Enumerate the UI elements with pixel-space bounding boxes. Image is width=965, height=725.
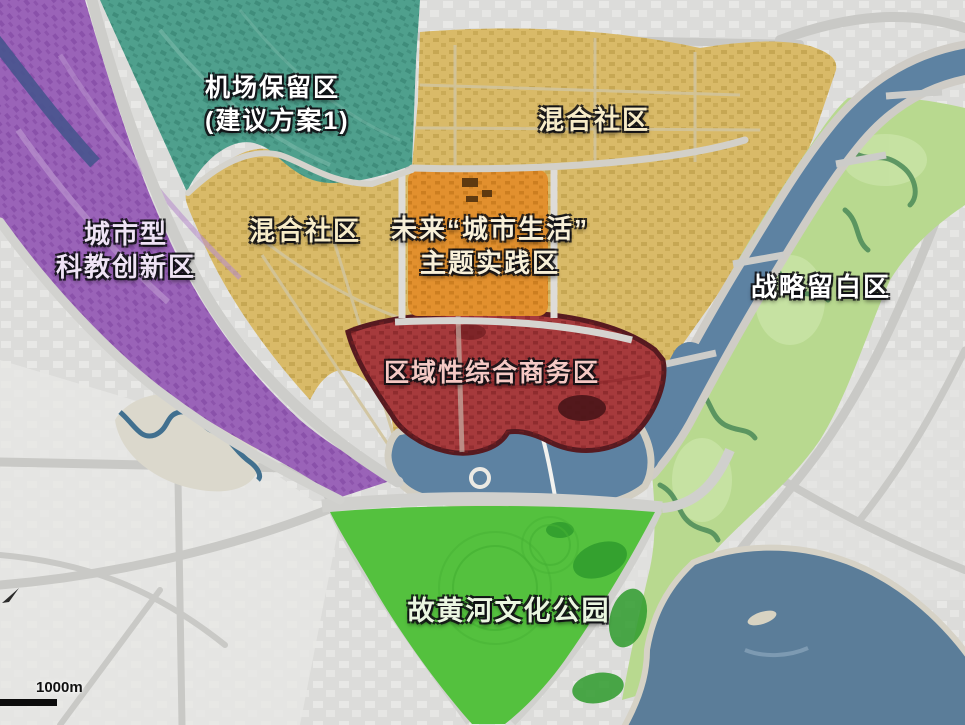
label-sci-line2: 科教创新区 — [56, 251, 196, 284]
scale-bar — [0, 699, 57, 706]
label-sci-edu: 城市型 科教创新区 — [56, 218, 196, 284]
label-future-line2: 主题实践区 — [391, 246, 589, 280]
label-future-line1: 未来“城市生活” — [391, 212, 589, 246]
label-mixed-community-top: 混合社区 — [538, 104, 650, 137]
scale-bar-label: 1000m — [36, 679, 83, 696]
label-yellow-river-park: 故黄河文化公园 — [408, 595, 611, 628]
label-airport-line2: (建议方案1) — [205, 105, 350, 138]
planning-map: 机场保留区 (建议方案1) 混合社区 城市型 科教创新区 混合社区 未来“城市生… — [0, 0, 965, 725]
label-airport-reserve: 机场保留区 (建议方案1) — [205, 72, 350, 138]
label-future-city-life: 未来“城市生活” 主题实践区 — [391, 212, 589, 280]
label-mixed-community-left: 混合社区 — [249, 215, 361, 248]
label-airport-line1: 机场保留区 — [205, 72, 350, 105]
label-sci-line1: 城市型 — [56, 218, 196, 251]
label-regional-business: 区域性综合商务区 — [384, 357, 600, 390]
label-strategic-reserve: 战略留白区 — [751, 271, 891, 304]
